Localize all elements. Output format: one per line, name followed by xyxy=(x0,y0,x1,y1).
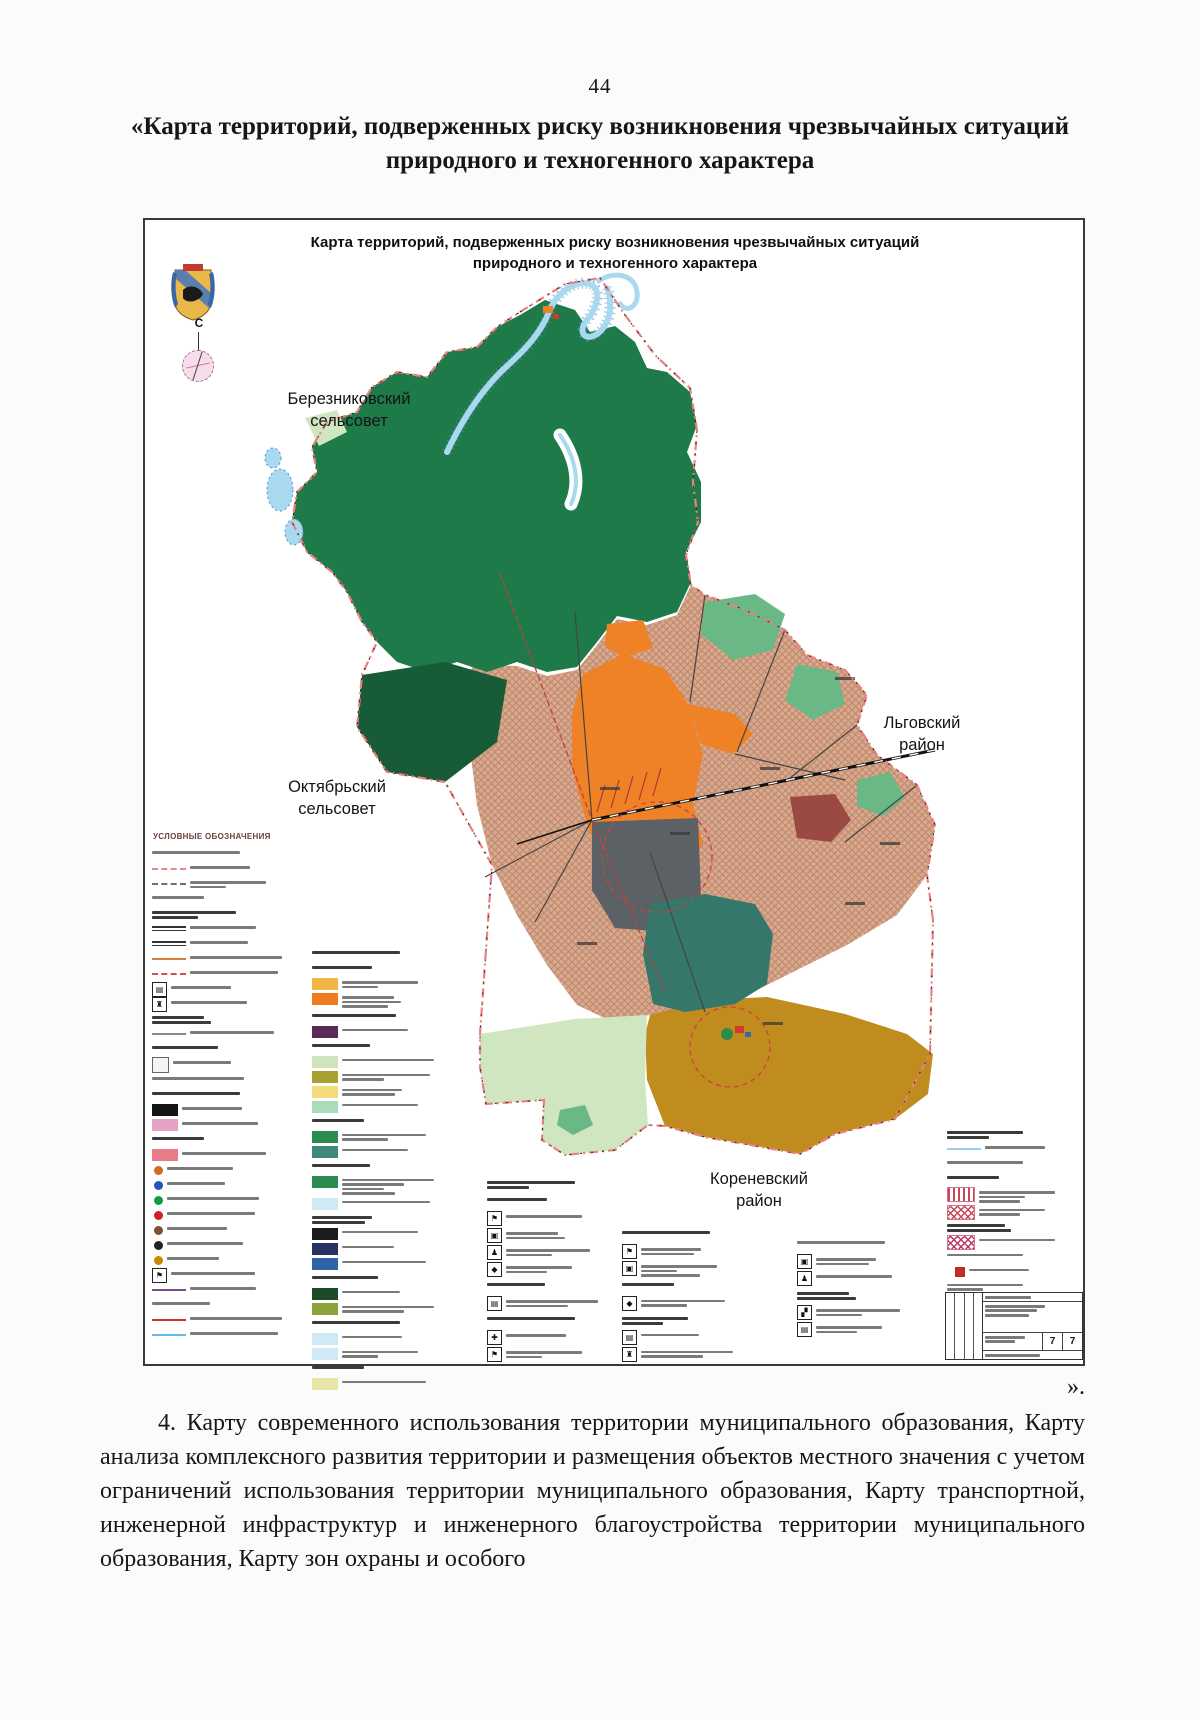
legend-symbol xyxy=(152,958,186,960)
legend-text-bar xyxy=(816,1309,900,1312)
legend-text-bars xyxy=(312,1362,480,1371)
legend-text-bar xyxy=(342,1355,378,1358)
legend-text-bar xyxy=(641,1304,687,1307)
legend-text-bar xyxy=(342,1351,418,1354)
legend-row xyxy=(152,1027,302,1042)
legend-text-bar xyxy=(152,1046,218,1049)
legend-text-bar xyxy=(152,1077,244,1080)
legend-symbol xyxy=(152,1149,178,1161)
legend-row xyxy=(312,1010,480,1025)
legend-row xyxy=(947,1127,1067,1142)
legend-row xyxy=(312,962,480,977)
legend-symbol: ✚ xyxy=(487,1330,502,1345)
legend-text-bar xyxy=(171,1001,247,1004)
legend-text-bar xyxy=(506,1305,568,1308)
legend-row xyxy=(312,1302,480,1317)
legend-column: ▤♜⚑ xyxy=(152,847,302,1343)
legend-symbol xyxy=(312,1243,338,1255)
page-heading: «Карта территорий, подверженных риску во… xyxy=(100,110,1100,178)
legend-text-bar xyxy=(641,1300,725,1303)
legend-text-bars xyxy=(312,1212,480,1226)
legend-text-bars xyxy=(167,1163,302,1172)
legend-text-bar xyxy=(487,1317,575,1320)
legend-row xyxy=(947,1142,1067,1157)
legend-text-bar xyxy=(190,881,266,884)
legend-text-bar xyxy=(190,866,250,869)
legend-text-bars xyxy=(167,1178,302,1187)
legend-text-bar xyxy=(342,996,394,999)
legend-row xyxy=(312,992,480,1010)
legend-symbol xyxy=(152,883,186,885)
legend-text-bars xyxy=(969,1265,1067,1274)
legend-symbol xyxy=(312,1333,338,1345)
legend-text-bars xyxy=(152,1298,302,1307)
legend-row xyxy=(312,1227,480,1242)
legend-text-bars xyxy=(190,1283,302,1292)
legend-text-bars xyxy=(190,967,302,976)
legend-row xyxy=(152,1223,302,1238)
legend-row xyxy=(947,1250,1067,1265)
legend-text-bars xyxy=(171,1268,302,1277)
legend-text-bars xyxy=(487,1177,642,1191)
legend-text-bars xyxy=(182,1103,302,1112)
legend-text-bars xyxy=(487,1313,642,1322)
legend-symbol xyxy=(152,1033,186,1035)
legend-text-bar xyxy=(167,1227,227,1230)
legend-symbol: ◆ xyxy=(487,1262,502,1277)
legend-text-bar xyxy=(167,1212,255,1215)
legend-text-bar xyxy=(190,1332,278,1335)
legend-symbol xyxy=(947,1148,981,1150)
legend-row xyxy=(312,1070,480,1085)
legend-text-bar xyxy=(947,1136,989,1139)
legend-text-bar xyxy=(312,1221,365,1224)
legend-text-bar xyxy=(622,1231,710,1234)
legend-text-bar xyxy=(342,1183,404,1186)
legend-symbol: ♜ xyxy=(152,997,167,1012)
legend-text-bar xyxy=(152,916,198,919)
legend-title: УСЛОВНЫЕ ОБОЗНАЧЕНИЯ xyxy=(153,832,271,841)
area-label-line: район xyxy=(822,734,1022,756)
legend-row xyxy=(312,1115,480,1130)
legend-symbol xyxy=(152,926,186,931)
legend-row xyxy=(152,1148,302,1163)
legend-symbol xyxy=(152,1057,169,1073)
legend-text-bar xyxy=(312,1044,370,1047)
legend-row xyxy=(312,1130,480,1145)
legend-text-bar xyxy=(947,1176,999,1179)
legend-symbol xyxy=(154,1211,163,1220)
legend-row xyxy=(152,1057,302,1073)
legend-row xyxy=(312,1145,480,1160)
legend-text-bar xyxy=(342,1188,384,1191)
legend-text-bar xyxy=(152,1137,204,1140)
legend-row: ⚑ xyxy=(487,1211,642,1228)
legend-text-bar xyxy=(152,1021,211,1024)
legend-row xyxy=(947,1235,1067,1250)
area-label-line: район xyxy=(659,1190,859,1212)
legend-text-bars xyxy=(342,1302,480,1315)
legend-row xyxy=(312,1055,480,1070)
legend-row xyxy=(312,1347,480,1362)
legend-text-bars xyxy=(816,1322,947,1335)
legend-symbol: ◆ xyxy=(622,1296,637,1311)
legend-text-bar xyxy=(190,956,282,959)
legend-text-bar xyxy=(152,911,236,914)
legend-symbol: ▤ xyxy=(487,1296,502,1311)
legend-text-bars xyxy=(641,1261,772,1279)
legend-text-bar xyxy=(190,1287,256,1290)
legend-text-bars xyxy=(182,1118,302,1127)
legend-row xyxy=(152,922,302,937)
legend-row xyxy=(622,1279,772,1296)
legend-symbol xyxy=(152,941,186,946)
legend-text-bar xyxy=(342,1336,402,1339)
legend-symbol xyxy=(312,1056,338,1068)
legend-row xyxy=(487,1279,642,1296)
legend-row xyxy=(312,1085,480,1100)
legend-row xyxy=(152,1163,302,1178)
legend-row: ♜ xyxy=(152,997,302,1012)
legend-column: ⚑▣◆▤♜ xyxy=(622,1227,772,1364)
legend-text-bars xyxy=(190,877,302,890)
legend-text-bar xyxy=(342,1138,388,1141)
legend-text-bar xyxy=(342,1093,395,1096)
legend-text-bar xyxy=(641,1270,677,1273)
legend-text-bars xyxy=(190,1027,302,1036)
legend-text-bars xyxy=(979,1235,1067,1244)
legend-text-bars xyxy=(312,1115,480,1124)
legend-row xyxy=(947,1157,1067,1172)
legend-symbol xyxy=(312,1303,338,1315)
legend-symbol: ▞ xyxy=(797,1305,812,1320)
legend-row xyxy=(312,977,480,992)
legend-text-bar xyxy=(979,1196,1025,1199)
legend-text-bars xyxy=(171,997,302,1006)
legend-row xyxy=(947,1205,1067,1220)
legend-row xyxy=(152,1103,302,1118)
legend-text-bars xyxy=(816,1271,947,1280)
legend-row: ▞ xyxy=(797,1305,947,1322)
legend-text-bar xyxy=(167,1242,243,1245)
legend-text-bars xyxy=(487,1279,642,1288)
lake xyxy=(267,469,293,511)
legend-text-bar xyxy=(979,1213,1020,1216)
legend-text-bar xyxy=(167,1257,219,1260)
legend-row: ✚ xyxy=(487,1330,642,1347)
legend-row xyxy=(312,1272,480,1287)
legend-text-bar xyxy=(816,1326,882,1329)
legend-text-bar xyxy=(979,1209,1045,1212)
legend-row xyxy=(152,1208,302,1223)
legend-symbol xyxy=(312,1071,338,1083)
legend-text-bars xyxy=(312,962,480,971)
legend-row xyxy=(947,1220,1067,1235)
stamp-cell xyxy=(983,1333,1042,1350)
legend-row: ⚑ xyxy=(622,1244,772,1261)
legend-text-bars xyxy=(167,1223,302,1232)
legend-text-bar xyxy=(816,1263,869,1266)
legend-symbol xyxy=(152,868,186,870)
legend-text-bars xyxy=(312,947,480,956)
legend-text-bars xyxy=(641,1347,772,1360)
legend-symbol xyxy=(154,1256,163,1265)
legend-text-bar xyxy=(190,926,256,929)
legend-row: ◆ xyxy=(487,1262,642,1279)
compass-rose-icon xyxy=(182,350,214,382)
legend-row: ◆ xyxy=(622,1296,772,1313)
legend-text-bar xyxy=(312,1276,378,1279)
legend-text-bar xyxy=(312,1164,370,1167)
legend-text-bars xyxy=(342,1347,480,1360)
legend-symbol xyxy=(154,1196,163,1205)
legend-text-bars xyxy=(182,1148,302,1157)
legend-text-bar xyxy=(816,1331,857,1334)
legend-symbol: ▣ xyxy=(622,1261,637,1276)
map-canvas: Карта территорий, подверженных риску воз… xyxy=(145,220,1083,1364)
title-block-stamp: 7 7 xyxy=(945,1292,1083,1360)
legend-text-bar xyxy=(342,1261,426,1264)
legend-column xyxy=(947,1127,1067,1295)
legend-text-bar xyxy=(947,1224,1005,1227)
legend-row: ▣ xyxy=(622,1261,772,1279)
legend-symbol: ▤ xyxy=(797,1322,812,1337)
legend-row xyxy=(152,1298,302,1313)
legend-row xyxy=(312,1287,480,1302)
legend-row xyxy=(152,877,302,892)
legend-text-bar xyxy=(979,1200,1020,1203)
legend-row xyxy=(947,1187,1067,1205)
legend-symbol xyxy=(312,1026,338,1038)
legend-text-bar xyxy=(342,1231,418,1234)
legend-text-bars xyxy=(312,1160,480,1169)
legend-row xyxy=(152,1313,302,1328)
mustard-region xyxy=(645,997,933,1154)
legend-text-bar xyxy=(171,1272,255,1275)
stamp-row xyxy=(983,1351,1082,1359)
legend-row: ♜ xyxy=(622,1347,772,1364)
stamp-row xyxy=(983,1293,1082,1302)
legend-text-bars xyxy=(167,1208,302,1217)
legend-text-bar xyxy=(622,1317,688,1320)
legend-text-bars xyxy=(342,1287,480,1296)
legend-text-bar xyxy=(622,1322,663,1325)
legend-text-bar xyxy=(190,1031,274,1034)
legend-text-bar xyxy=(487,1198,547,1201)
legend-text-bars xyxy=(171,982,302,991)
legend-text-bar xyxy=(342,1001,401,1004)
legend-symbol xyxy=(154,1226,163,1235)
map-title: Карта территорий, подверженных риску воз… xyxy=(255,232,975,274)
legend-text-bar xyxy=(152,896,204,899)
legend-text-bars xyxy=(947,1127,1067,1141)
legend-symbol: ▣ xyxy=(487,1228,502,1243)
map-figure: Карта территорий, подверженных риску воз… xyxy=(143,218,1085,1366)
legend-row xyxy=(487,1313,642,1330)
legend-text-bars xyxy=(342,1070,480,1083)
legend-text-bar xyxy=(342,1059,434,1062)
legend-text-bar xyxy=(312,1216,372,1219)
legend-symbol: ♜ xyxy=(622,1347,637,1362)
legend-text-bars xyxy=(152,1073,302,1082)
legend-text-bar xyxy=(342,1201,430,1204)
legend-text-bar xyxy=(342,986,378,989)
legend-text-bar xyxy=(167,1182,225,1185)
legend-symbol xyxy=(312,1176,338,1188)
legend-row xyxy=(312,1212,480,1227)
legend-text-bar xyxy=(342,1149,408,1152)
document-page: { "page": { "number": "44", "heading": "… xyxy=(0,0,1200,1720)
legend-text-bar xyxy=(985,1146,1045,1149)
legend-symbol: ⚑ xyxy=(622,1244,637,1259)
legend-row xyxy=(312,1025,480,1040)
lake xyxy=(265,448,281,468)
legend-text-bar xyxy=(182,1107,242,1110)
legend-text-bar xyxy=(342,1089,402,1092)
legend-row xyxy=(312,1317,480,1332)
lake xyxy=(285,519,303,545)
legend-text-bar xyxy=(312,1366,364,1369)
stamp-sheet-number: 7 xyxy=(1042,1333,1062,1350)
legend-row xyxy=(152,1118,302,1133)
legend-row xyxy=(312,1242,480,1257)
legend-symbol xyxy=(152,1119,178,1131)
legend-column: ⚑▣♟◆▤✚⚑ xyxy=(487,1177,642,1364)
stamp-row xyxy=(983,1302,1082,1333)
legend-symbol: ⚑ xyxy=(152,1268,167,1283)
stamp-total-sheets: 7 xyxy=(1062,1333,1082,1350)
teal-region xyxy=(643,894,773,1012)
legend-row xyxy=(312,1257,480,1272)
legend-symbol xyxy=(152,1104,178,1116)
legend-text-bar xyxy=(342,1104,418,1107)
legend-text-bar xyxy=(152,851,240,854)
area-label-line: Льговский xyxy=(822,712,1022,734)
legend-text-bar xyxy=(947,1161,1023,1164)
legend-text-bars xyxy=(641,1330,772,1339)
legend-text-bar xyxy=(506,1266,572,1269)
legend-text-bars xyxy=(985,1142,1067,1151)
legend-symbol xyxy=(312,1086,338,1098)
legend-text-bar xyxy=(797,1241,885,1244)
legend-row xyxy=(152,1133,302,1148)
legend-text-bar xyxy=(797,1292,849,1295)
legend-row: ▤ xyxy=(622,1330,772,1347)
legend-text-bars xyxy=(342,1197,480,1206)
legend-text-bars xyxy=(342,1257,480,1266)
legend-row xyxy=(312,1100,480,1115)
area-label-line: Октябрьский xyxy=(237,776,437,798)
stamp-right-area: 7 7 xyxy=(983,1293,1082,1359)
legend-text-bar xyxy=(167,1197,259,1200)
legend-text-bars xyxy=(342,1130,480,1143)
legend-text-bars xyxy=(342,1332,480,1341)
legend-row xyxy=(312,1040,480,1055)
legend-text-bars xyxy=(506,1211,642,1220)
legend-symbol: ▣ xyxy=(797,1254,812,1269)
legend-text-bar xyxy=(641,1334,699,1337)
legend-text-bars xyxy=(622,1279,772,1288)
legend-text-bars xyxy=(641,1244,772,1257)
legend-text-bars xyxy=(979,1187,1067,1205)
legend-text-bars xyxy=(342,977,480,990)
legend-text-bar xyxy=(506,1300,598,1303)
forest-region xyxy=(292,300,701,672)
legend-text-bars xyxy=(342,992,480,1010)
legend-text-bar xyxy=(190,971,278,974)
legend-text-bars xyxy=(816,1254,947,1267)
legend-text-bars xyxy=(167,1253,302,1262)
legend-symbol xyxy=(312,1288,338,1300)
legend-row xyxy=(487,1177,642,1194)
legend-text-bar xyxy=(506,1215,582,1218)
legend-text-bars xyxy=(641,1296,772,1309)
legend-text-bar xyxy=(182,1152,266,1155)
legend-symbol xyxy=(154,1241,163,1250)
legend-row: ▣ xyxy=(797,1254,947,1271)
legend-symbol xyxy=(312,1101,338,1113)
legend-text-bar xyxy=(190,1317,282,1320)
legend-row xyxy=(947,1265,1067,1280)
legend-text-bars xyxy=(622,1313,772,1327)
legend-text-bars xyxy=(190,862,302,871)
legend-text-bars xyxy=(152,847,302,856)
legend-text-bars xyxy=(797,1288,947,1302)
legend-text-bar xyxy=(979,1239,1055,1242)
legend-text-bar xyxy=(641,1253,694,1256)
legend-text-bar xyxy=(816,1314,862,1317)
legend-text-bar xyxy=(342,981,418,984)
legend-text-bar xyxy=(167,1167,233,1170)
legend-text-bars xyxy=(979,1205,1067,1218)
legend-text-bars xyxy=(190,1328,302,1337)
legend-symbol xyxy=(312,1258,338,1270)
legend-symbol xyxy=(152,1289,186,1291)
legend-symbol xyxy=(312,1131,338,1143)
legend-text-bar xyxy=(152,1016,204,1019)
legend-text-bars xyxy=(173,1057,302,1066)
area-label-korenevo: Кореневский район xyxy=(659,1168,859,1212)
legend-row xyxy=(152,892,302,907)
legend-symbol: ♟ xyxy=(797,1271,812,1286)
legend-text-bar xyxy=(173,1061,231,1064)
legend-text-bars xyxy=(342,1145,480,1154)
legend-row xyxy=(152,847,302,862)
legend-symbol xyxy=(154,1181,163,1190)
legend-text-bar xyxy=(622,1283,674,1286)
legend-symbol xyxy=(312,1198,338,1210)
area-label-line: Березниковский xyxy=(249,388,449,410)
legend-text-bar xyxy=(506,1334,566,1337)
legend-symbol xyxy=(312,1228,338,1240)
legend-symbol xyxy=(947,1205,975,1220)
legend-row xyxy=(152,1012,302,1027)
legend-text-bars xyxy=(947,1220,1067,1234)
legend-row: ♟ xyxy=(487,1245,642,1262)
legend-text-bar xyxy=(342,1291,400,1294)
legend-row xyxy=(312,1332,480,1347)
legend-row: ⚑ xyxy=(487,1347,642,1364)
legend-text-bar xyxy=(506,1232,558,1235)
legend-text-bars xyxy=(190,922,302,931)
legend-row: ▤ xyxy=(797,1322,947,1339)
legend-row xyxy=(152,907,302,922)
legend-symbol xyxy=(312,978,338,990)
legend-text-bars xyxy=(947,1280,1067,1293)
legend-row xyxy=(152,1238,302,1253)
legend-text-bar xyxy=(342,1192,395,1195)
legend-row xyxy=(152,1193,302,1208)
